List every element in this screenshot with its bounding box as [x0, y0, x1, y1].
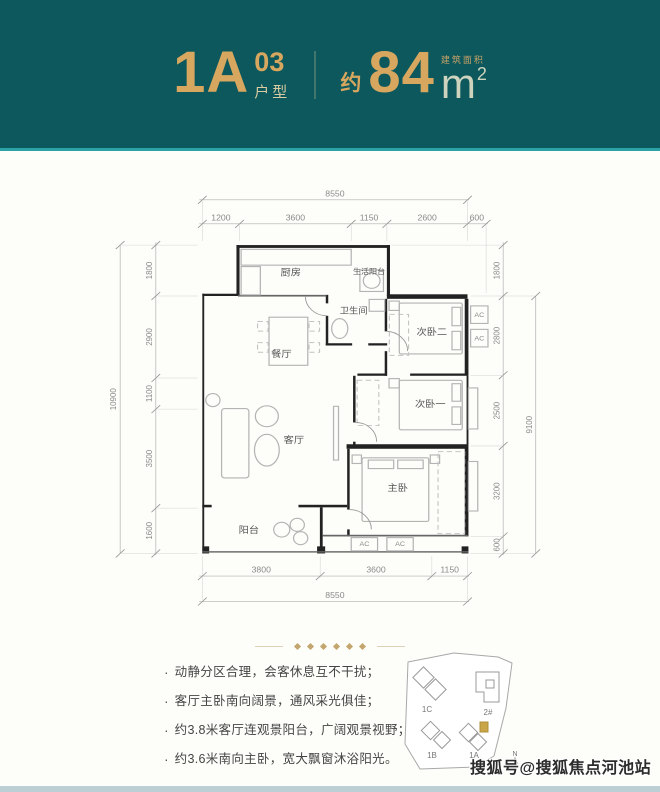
feature-list: · 动静分区合理，会客休息互不干扰； · 客厅主卧南向阔景，通风采光俱佳； · …: [164, 663, 434, 779]
dim-label: 3500: [143, 450, 153, 468]
floorplan: 1200 3600 1150 2600 600 8550 1800 2900 1…: [100, 180, 559, 627]
dim-label: 2800: [491, 326, 501, 344]
dim-label: 1150: [360, 213, 379, 223]
room-label-balcony: 阳台: [239, 524, 260, 536]
unit-type-label: 户型: [254, 81, 290, 102]
dim-label: 2600: [418, 213, 438, 223]
dim-label: 2500: [491, 401, 501, 419]
header-divider: [314, 51, 316, 99]
feature-text: 动静分区合理，会客休息互不干扰；: [175, 663, 380, 681]
dim-label: 2900: [143, 328, 153, 346]
bottom-strip: [0, 786, 660, 792]
diamond-icon: [307, 643, 314, 650]
area-unit: m: [441, 66, 476, 102]
bullet-icon: ·: [164, 721, 169, 739]
dim-label: 1800: [143, 261, 153, 279]
diamond-icon: [346, 643, 353, 650]
dim-label: 1200: [211, 213, 231, 223]
dim-label: 600: [491, 538, 501, 552]
watermark: 搜狐号@搜狐焦点河池站: [470, 754, 651, 778]
dim-label: 1600: [143, 522, 153, 540]
bullet-icon: ·: [164, 750, 169, 768]
feature-item: · 动静分区合理，会客休息互不干扰；: [164, 663, 434, 681]
feature-item: · 约3.8米客厅连观景阳台，广阔观景视野；: [164, 721, 434, 739]
extension-lines: [122, 201, 534, 600]
room-label-kitchen: 厨房: [281, 266, 301, 278]
room-label-dining: 餐厅: [271, 347, 292, 359]
approx-label: 约: [340, 67, 361, 97]
bullet-icon: ·: [164, 663, 169, 681]
feature-text: 客厅主卧南向阔景，通风采光俱佳；: [175, 692, 380, 710]
dim-label: 1800: [491, 261, 501, 279]
room-label-living: 客厅: [284, 434, 305, 446]
room-label-service-balcony: 生活阳台: [353, 267, 386, 277]
room-labels: 厨房 生活阳台 卫生间 餐厅 次卧二 次卧一 客厅 主卧 阳台: [239, 266, 448, 536]
feature-text: 约3.6米南向主卧，宽大飘窗沐浴阳光。: [175, 750, 398, 768]
feature-text: 约3.8米客厅连观景阳台，广阔观景视野；: [175, 721, 411, 739]
header-band: 1A 03 户型 约 84 建筑面积 m 2: [0, 0, 660, 151]
ornament-divider: [0, 644, 660, 649]
room-label-master: 主卧: [388, 482, 409, 494]
area-unit-stack: 建筑面积 m 2: [441, 53, 487, 102]
dim-label: 600: [470, 213, 485, 223]
door-arcs: [305, 296, 407, 529]
ac-label: AC: [359, 541, 369, 548]
area-exponent: 2: [477, 64, 487, 85]
dimension-lines: [120, 200, 536, 602]
dashed-furniture: [258, 314, 465, 533]
diamond-icon: [359, 643, 366, 650]
dimension-ticks: [116, 196, 540, 606]
unit-code-suffix: 03: [254, 49, 290, 76]
dim-label: 3600: [286, 213, 306, 223]
diamond-icon: [333, 643, 340, 650]
dim-label: 1100: [143, 385, 153, 402]
dim-label-total: 10900: [108, 388, 118, 410]
header-content: 1A 03 户型 约 84 建筑面积 m 2: [173, 47, 487, 102]
dim-label-total: 8550: [325, 189, 345, 199]
bullet-icon: ·: [164, 692, 169, 710]
page: 1A 03 户型 约 84 建筑面积 m 2: [0, 0, 660, 792]
diamond-icon: [294, 643, 301, 650]
unit-code: 1A: [173, 47, 249, 99]
dim-label-total: 9100: [524, 416, 534, 434]
divider-rule-right: [377, 646, 405, 647]
ac-label: AC: [474, 336, 484, 343]
area-unit-row: m 2: [441, 66, 487, 102]
room-label-bedroom2: 次卧二: [417, 326, 448, 338]
building-label-2: 2#: [484, 708, 493, 717]
divider-rule-left: [255, 646, 283, 647]
dim-label-total: 8550: [325, 591, 345, 601]
ac-label: AC: [395, 541, 405, 548]
building-label-1c: 1C: [422, 705, 432, 714]
dim-label: 1150: [440, 565, 459, 575]
feature-item: · 客厅主卧南向阔景，通风采光俱佳；: [164, 692, 434, 710]
ac-label: AC: [474, 312, 484, 319]
dim-label: 3600: [366, 565, 386, 575]
area-value: 84: [368, 47, 435, 99]
feature-item: · 约3.6米南向主卧，宽大飘窗沐浴阳光。: [164, 750, 434, 768]
building-label-1b: 1B: [427, 751, 437, 760]
room-label-bathroom: 卫生间: [340, 305, 368, 315]
highlighted-unit: [480, 722, 488, 732]
diamond-icon: [320, 643, 327, 650]
room-label-bedroom1: 次卧一: [415, 397, 446, 409]
dim-label: 3800: [252, 565, 272, 575]
dim-label: 3200: [491, 482, 501, 500]
unit-code-stack: 03 户型: [254, 49, 290, 102]
